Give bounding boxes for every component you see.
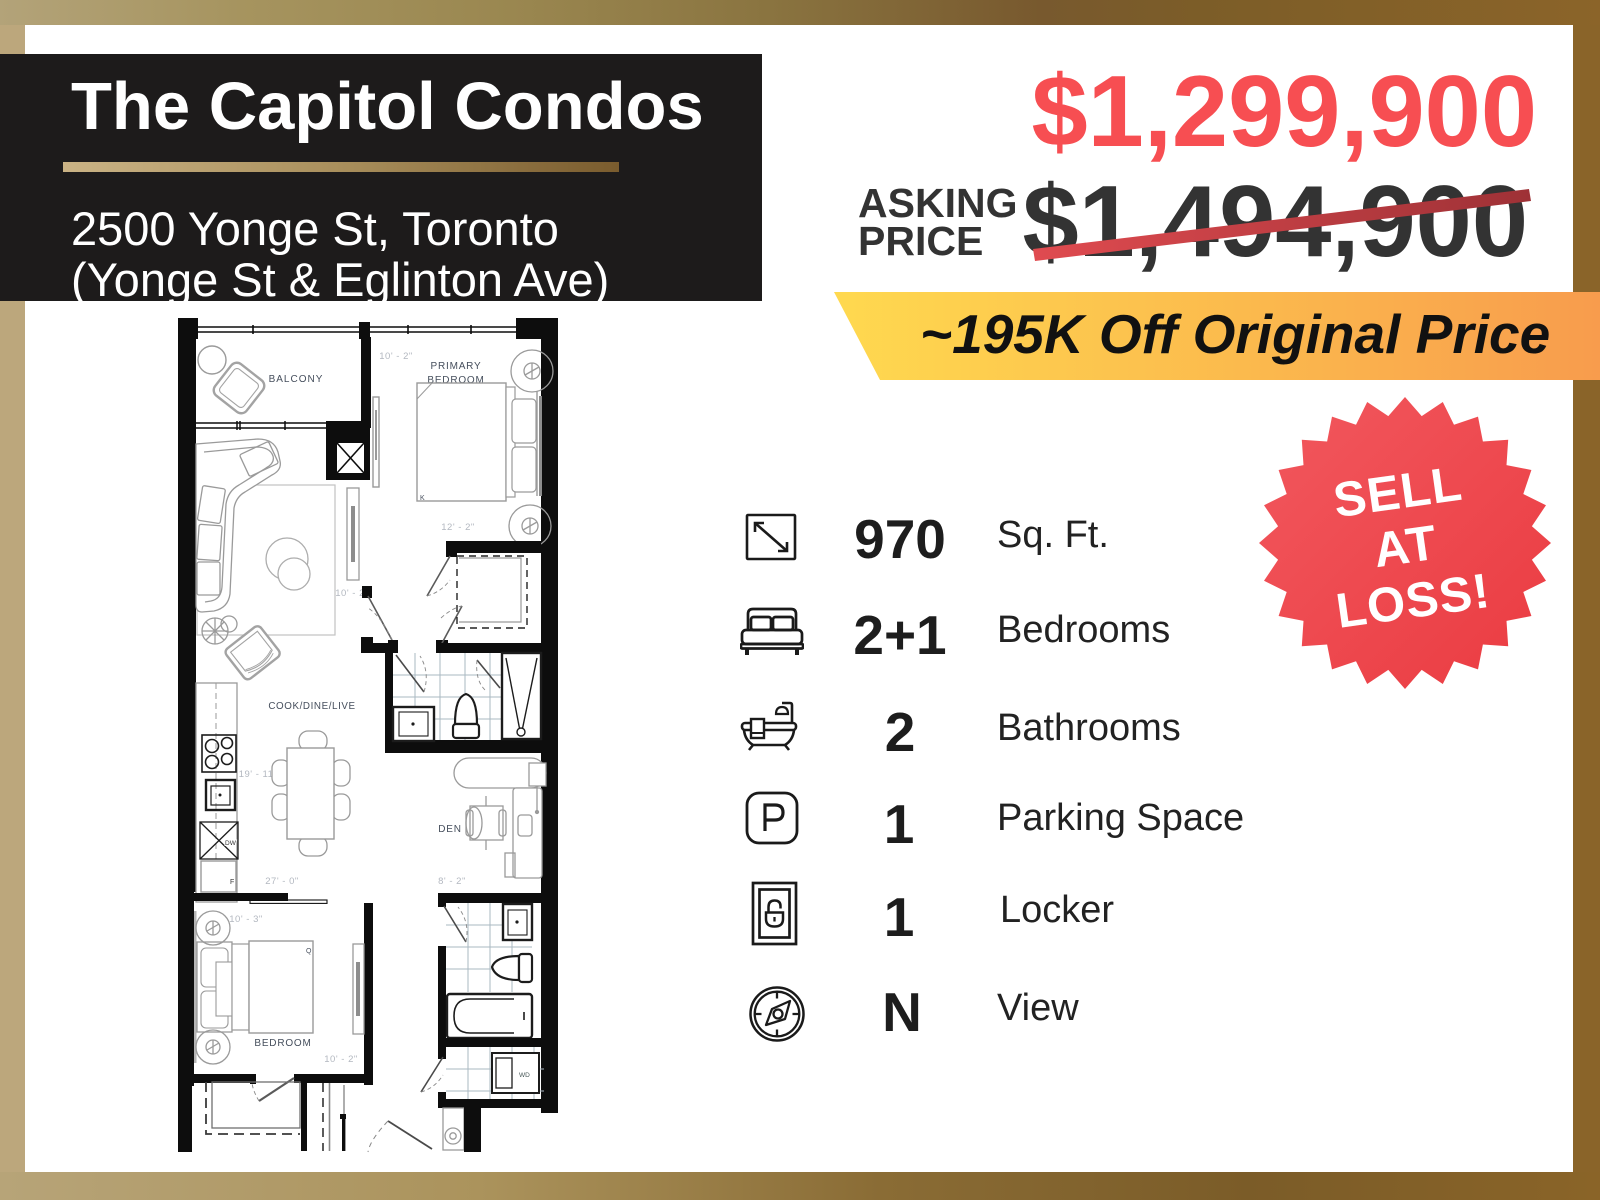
svg-text:12' - 2": 12' - 2" — [441, 522, 474, 533]
svg-text:BALCONY: BALCONY — [269, 374, 324, 385]
svg-text:10' - 3": 10' - 3" — [229, 914, 262, 925]
svg-text:10' - 2": 10' - 2" — [379, 351, 412, 362]
svg-text:WD: WD — [519, 1072, 530, 1079]
svg-text:27' - 0": 27' - 0" — [265, 876, 298, 887]
svg-text:10' - 2": 10' - 2" — [324, 1054, 357, 1065]
svg-text:DEN: DEN — [438, 824, 462, 835]
svg-text:K: K — [420, 495, 425, 502]
svg-text:BEDROOM: BEDROOM — [254, 1038, 311, 1049]
svg-text:Q: Q — [306, 948, 312, 955]
svg-text:AT: AT — [1370, 516, 1441, 578]
svg-text:8' - 2": 8' - 2" — [438, 876, 466, 887]
svg-text:F: F — [230, 879, 234, 886]
svg-text:PRIMARY: PRIMARY — [431, 361, 482, 372]
svg-text:COOK/DINE/LIVE: COOK/DINE/LIVE — [268, 701, 355, 712]
svg-text:DW: DW — [225, 840, 237, 847]
